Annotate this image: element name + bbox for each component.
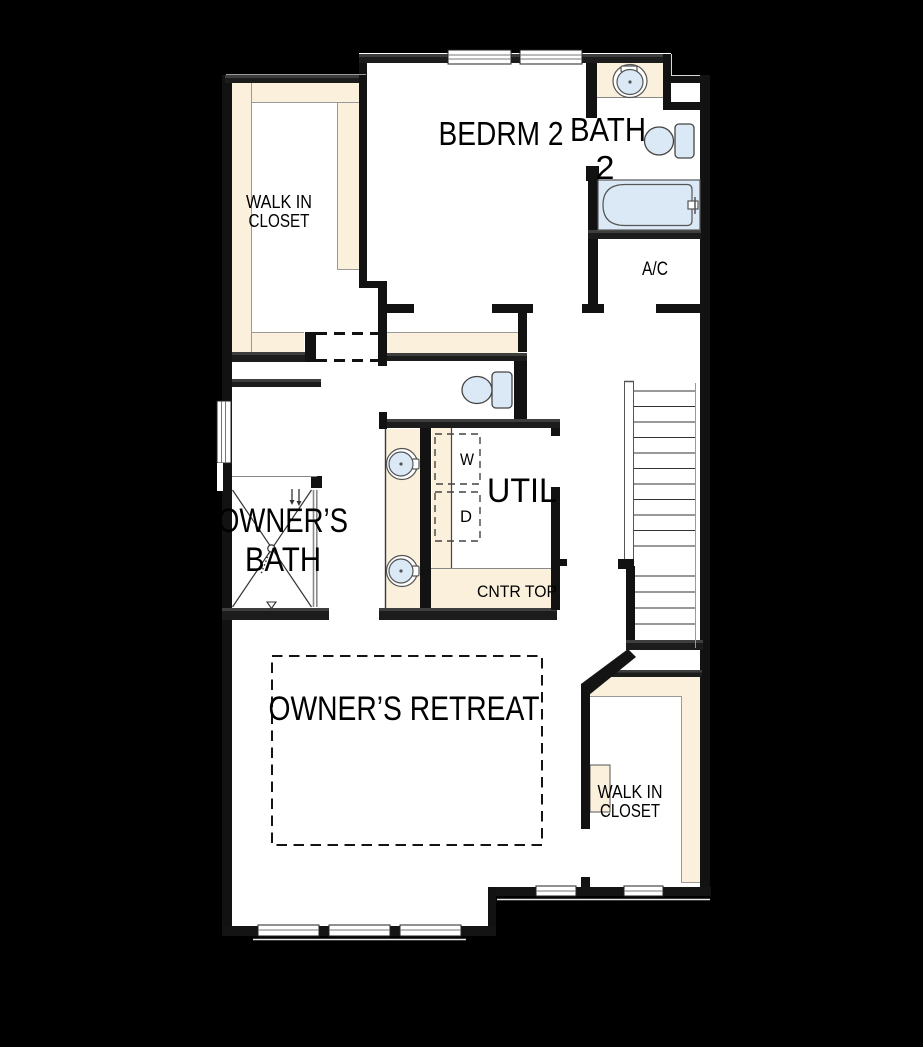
- svg-text:UTIL: UTIL: [487, 472, 557, 510]
- svg-text:D: D: [460, 507, 472, 526]
- svg-text:WALK IN: WALK IN: [246, 192, 312, 212]
- svg-text:CLOSET: CLOSET: [600, 801, 660, 821]
- svg-text:W: W: [460, 450, 474, 469]
- svg-text:OWNER’S RETREAT: OWNER’S RETREAT: [269, 690, 540, 728]
- svg-text:A/C: A/C: [642, 259, 668, 280]
- svg-text:BEDRM 2: BEDRM 2: [439, 115, 564, 152]
- svg-text:BATH: BATH: [245, 541, 321, 579]
- svg-text:OWNER’S: OWNER’S: [218, 502, 348, 540]
- svg-text:BATH: BATH: [570, 111, 646, 148]
- svg-text:CLOSET: CLOSET: [249, 211, 310, 231]
- svg-text:CNTR TOP: CNTR TOP: [477, 582, 557, 601]
- svg-text:2: 2: [596, 149, 615, 186]
- svg-text:WALK IN: WALK IN: [598, 782, 663, 802]
